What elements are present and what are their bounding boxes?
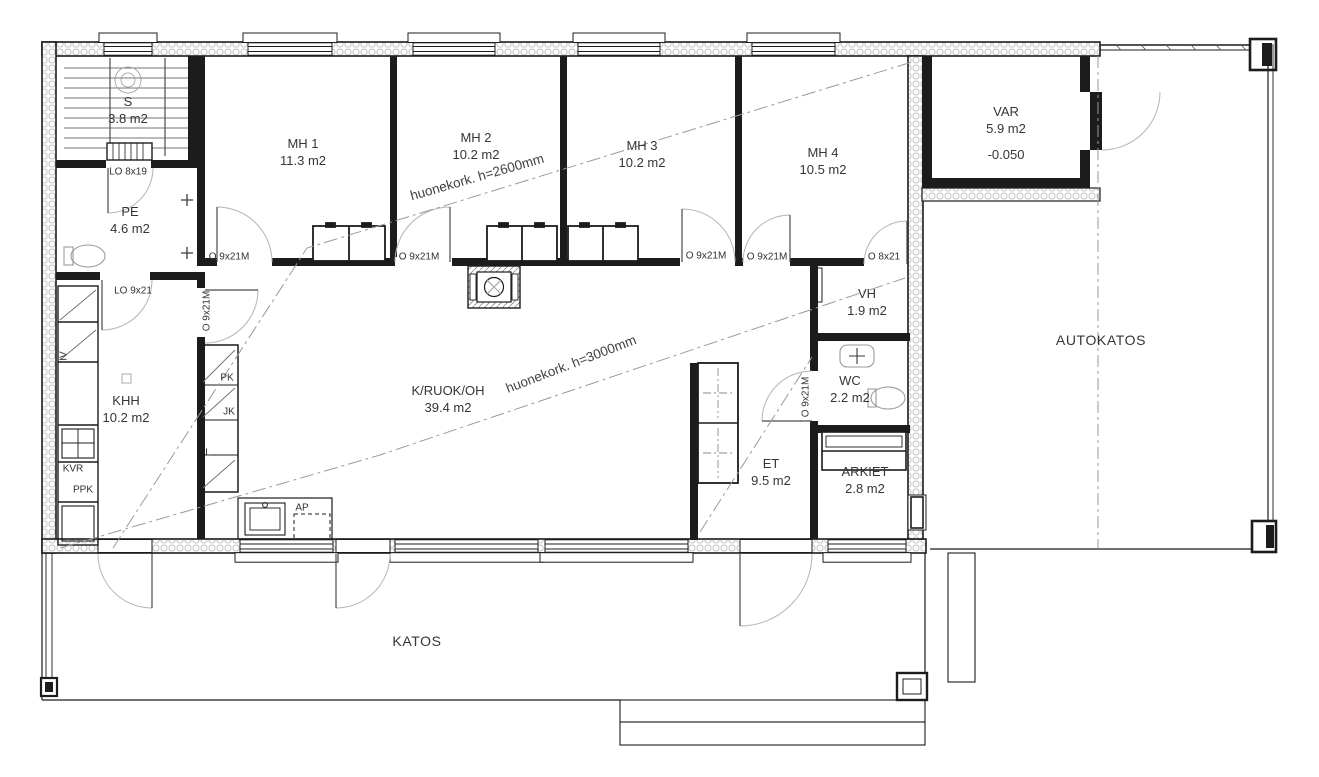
arkiet-shelves (822, 432, 906, 470)
wardrobe (313, 223, 385, 261)
wardrobe (487, 223, 557, 261)
khh-appliances (58, 286, 98, 545)
arkiet-exterior-door (908, 495, 926, 530)
window (390, 540, 543, 562)
kitchen-cabinets (200, 345, 332, 539)
et-cabinet (698, 363, 738, 483)
wardrobes (313, 223, 638, 261)
floor-plan-linework (0, 0, 1319, 777)
window (408, 33, 500, 55)
toilet-icon (71, 245, 105, 267)
fireplace (468, 266, 520, 308)
window (823, 540, 911, 562)
exterior-door-opening (98, 540, 152, 553)
katos-outline (41, 553, 975, 745)
dishwasher-outline (294, 514, 330, 539)
sauna-benches (64, 58, 188, 160)
pe-fixtures (64, 194, 193, 383)
wc-fixtures (814, 268, 906, 470)
floor-drain-icon (122, 374, 131, 383)
carport-step-column (948, 553, 975, 682)
katos-step-1 (620, 700, 925, 722)
wardrobe (568, 223, 638, 261)
sauna-heater-guard (107, 143, 152, 160)
var-door-leaf (1090, 92, 1102, 150)
window (99, 33, 157, 55)
window (243, 33, 337, 55)
window (747, 33, 840, 55)
door-openings (196, 257, 907, 421)
floor-plan: S3.8 m2PE4.6 m2MH 111.3 m2MH 210.2 m2MH … (0, 0, 1319, 777)
var-walls (922, 56, 1160, 201)
washbasin-marks (181, 194, 193, 259)
window (235, 540, 338, 562)
exterior-door-opening (336, 540, 390, 553)
carport-outline (930, 39, 1276, 552)
exterior-door-opening (740, 540, 812, 553)
window (540, 540, 693, 562)
katos-step-2 (620, 722, 925, 745)
var-door-arc (1102, 92, 1160, 150)
window (573, 33, 665, 55)
sauna-stove-icon (115, 67, 141, 93)
